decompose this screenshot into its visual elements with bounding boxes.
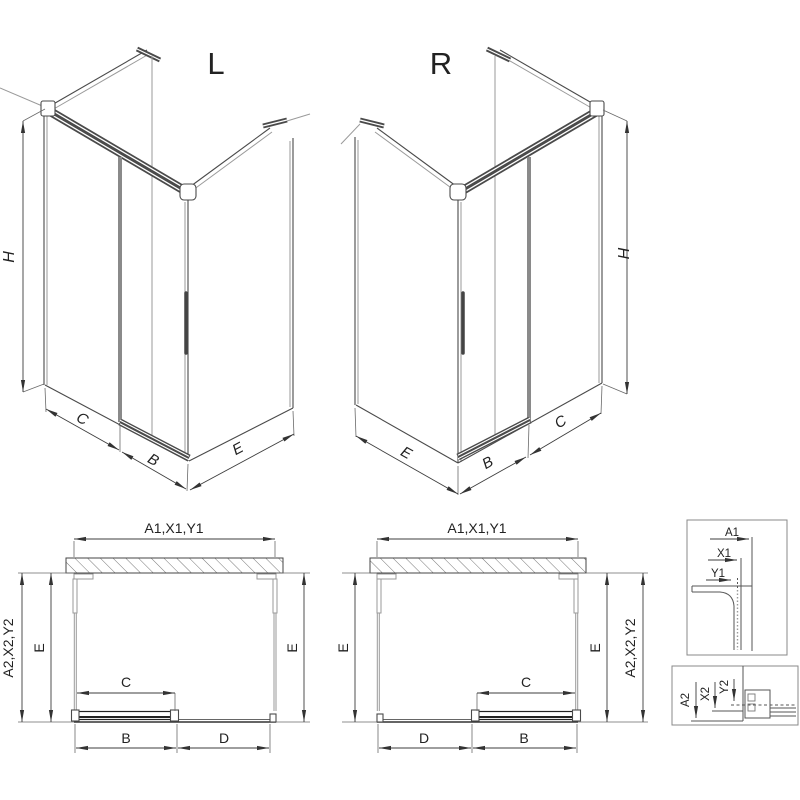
dim-e-left: E <box>31 573 51 722</box>
dim-x1: X1 <box>708 548 741 650</box>
dim-a1-label: A1,X1,Y1 <box>144 520 203 536</box>
rail-end-cap <box>270 714 276 722</box>
dim-e-label: E <box>31 643 47 652</box>
dim-b-label: B <box>519 730 528 746</box>
wall-profile <box>273 579 277 613</box>
dim-h: H <box>603 110 631 394</box>
dim-e-label: E <box>587 643 603 652</box>
dim-d: D <box>378 724 472 753</box>
dim-h: H <box>1 109 45 392</box>
iso-view-right: R H E <box>341 46 631 495</box>
dim-e-label: E <box>229 439 247 459</box>
wall-profile <box>559 574 578 579</box>
iso-left-title: L <box>207 46 224 81</box>
plan-view-left: A1,X1,Y1 A2,X2,Y2 E E C <box>0 520 310 753</box>
dim-c: C <box>530 386 602 455</box>
dim-b-label: B <box>121 730 130 746</box>
dim-a2: A2,X2,Y2 <box>0 573 22 722</box>
dim-x1-label: X1 <box>717 548 731 560</box>
wall-profile <box>377 579 381 613</box>
dim-a2: A2 <box>680 682 696 718</box>
dim-h-label: H <box>614 247 631 259</box>
dim-a1: A1,X1,Y1 <box>377 520 578 557</box>
dim-a1: A1 <box>710 527 752 651</box>
rail-corner-block <box>450 184 466 200</box>
plan-view-right: A1,X1,Y1 E E A2,X2,Y2 C D <box>335 520 648 753</box>
dim-y2: Y2 <box>719 679 796 705</box>
dim-a2-label: A2,X2,Y2 <box>622 618 638 677</box>
wall-profile <box>574 579 578 613</box>
detail-view-top: A1 X1 Y1 <box>687 520 787 655</box>
iso-view-left: L H <box>0 46 310 491</box>
sliding-door-section <box>72 710 179 721</box>
dim-c-label: C <box>121 674 131 690</box>
dim-c: C <box>477 674 575 711</box>
rail-corner-block <box>180 184 196 200</box>
wall-profile <box>377 574 396 579</box>
iso-right-title: R <box>430 46 452 81</box>
dim-d: D <box>178 724 270 753</box>
dim-x2-label: X2 <box>700 687 712 701</box>
dim-y2-label: Y2 <box>719 680 731 694</box>
rail-corner-block <box>41 101 55 116</box>
dim-e-label: E <box>335 643 351 652</box>
wall-profile <box>257 574 276 579</box>
dim-e-right: E <box>284 573 304 722</box>
dim-a2-label: A2,X2,Y2 <box>0 618 16 677</box>
dim-c-label: C <box>521 674 531 690</box>
dim-e-right: E <box>587 573 607 722</box>
dim-d-label: D <box>419 730 429 746</box>
dim-e-left: E <box>335 573 355 722</box>
dim-y1: Y1 <box>706 568 738 590</box>
dim-a2-label: A2 <box>680 693 692 707</box>
dim-b: B <box>473 724 577 753</box>
wall-section <box>370 558 586 573</box>
rail-end-cap <box>377 714 383 722</box>
wall-section <box>66 558 283 573</box>
shower-enclosure-drawing: L H <box>0 0 800 800</box>
dim-c-label: C <box>552 412 570 432</box>
dim-a1-label: A1,X1,Y1 <box>447 520 506 536</box>
dim-e-label: E <box>284 643 300 652</box>
wall-profile <box>74 574 93 579</box>
dim-a2: A2,X2,Y2 <box>622 573 643 722</box>
dim-c: C <box>77 674 175 711</box>
dim-y1-label: Y1 <box>711 568 725 580</box>
dim-e: E <box>355 408 458 495</box>
dim-e: E <box>190 411 294 490</box>
dim-e-label: E <box>398 443 416 463</box>
dim-b: B <box>75 724 177 753</box>
technical-drawing-page: L H <box>0 0 800 800</box>
wall-line <box>0 88 47 108</box>
rail-corner-block <box>590 101 604 116</box>
dim-d-label: D <box>219 730 229 746</box>
dim-h-label: H <box>1 251 18 263</box>
dim-a1-label: A1 <box>725 527 739 539</box>
detail-view-bottom: A2 X2 Y2 <box>672 666 798 725</box>
bottom-rail-section <box>745 690 796 718</box>
sliding-door-section <box>472 710 581 721</box>
wall-profile-section <box>692 586 752 650</box>
bottom-rail <box>458 418 530 459</box>
dim-c: C <box>45 388 120 452</box>
dim-b-label: B <box>479 453 496 473</box>
dim-a1: A1,X1,Y1 <box>74 520 275 557</box>
wall-profile <box>73 579 77 613</box>
